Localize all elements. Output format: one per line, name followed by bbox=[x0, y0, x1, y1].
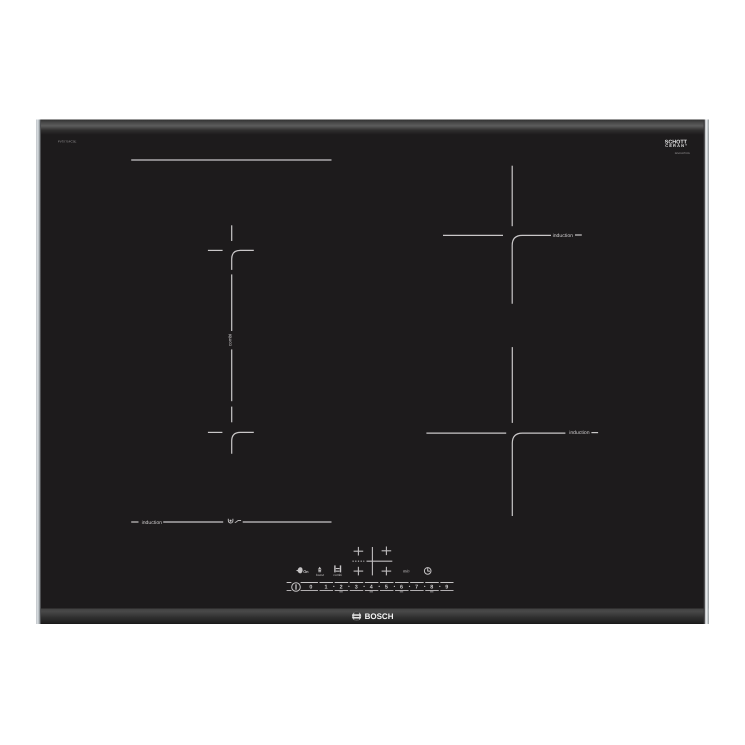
svg-text:®: ® bbox=[685, 143, 687, 146]
svg-text:On: On bbox=[303, 569, 309, 574]
svg-text:4: 4 bbox=[370, 585, 373, 591]
svg-text:combi: combi bbox=[333, 573, 342, 577]
svg-text:INNOVATION: INNOVATION bbox=[675, 152, 690, 155]
svg-text:8: 8 bbox=[430, 585, 433, 591]
svg-text:CERAN: CERAN bbox=[665, 143, 685, 148]
svg-text:3: 3 bbox=[355, 585, 358, 591]
svg-text:combi: combi bbox=[228, 334, 233, 346]
svg-text:7: 7 bbox=[415, 585, 418, 591]
svg-text:1: 1 bbox=[325, 585, 328, 591]
svg-text:9: 9 bbox=[445, 585, 448, 591]
svg-text:induction: induction bbox=[142, 520, 163, 526]
svg-text:BOSCH: BOSCH bbox=[365, 612, 394, 621]
svg-text:boost: boost bbox=[316, 573, 324, 577]
svg-text:6: 6 bbox=[400, 585, 403, 591]
svg-text:min: min bbox=[403, 569, 410, 574]
svg-text:2: 2 bbox=[340, 585, 343, 591]
svg-text:5: 5 bbox=[385, 585, 388, 591]
svg-text:PVS775FC5E: PVS775FC5E bbox=[58, 140, 77, 144]
svg-text:0: 0 bbox=[309, 585, 312, 591]
svg-text:induction: induction bbox=[553, 233, 574, 239]
svg-text:induction: induction bbox=[569, 430, 590, 436]
